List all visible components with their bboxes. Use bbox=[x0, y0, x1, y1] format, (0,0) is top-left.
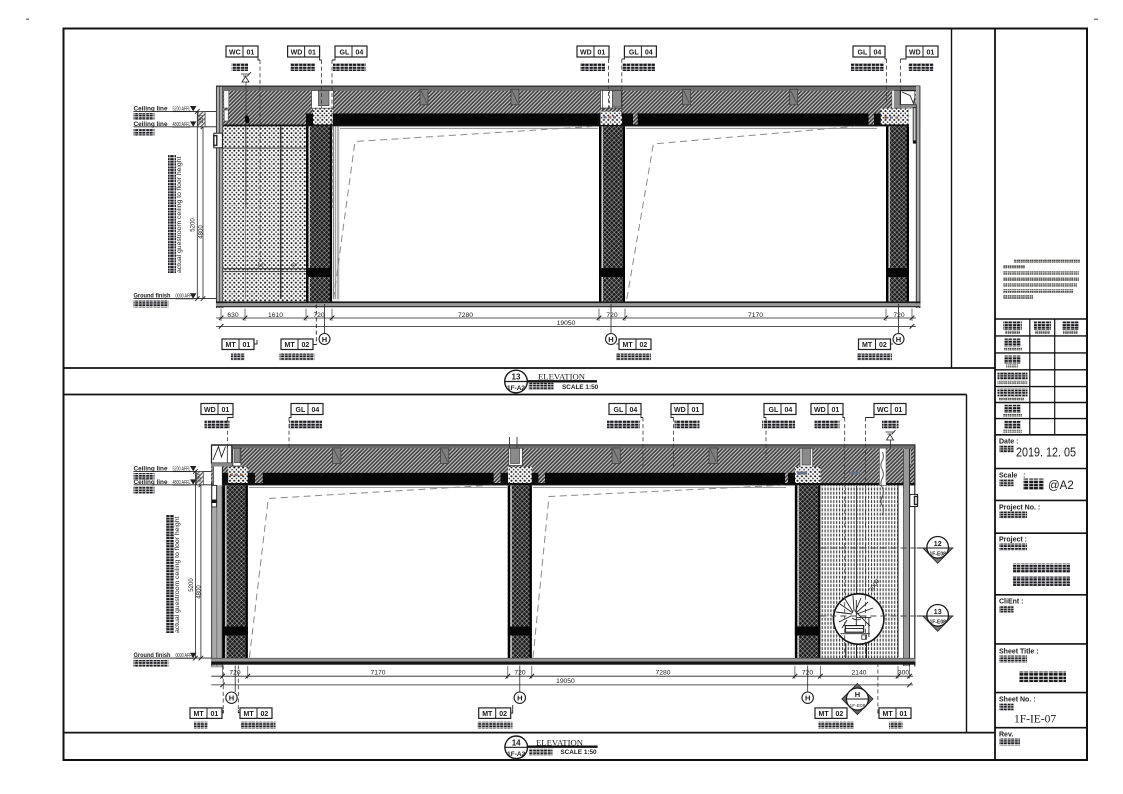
svg-text:02: 02 bbox=[836, 711, 844, 718]
svg-text:5200: 5200 bbox=[189, 578, 195, 592]
svg-text:720: 720 bbox=[893, 312, 904, 319]
svg-text:7280: 7280 bbox=[656, 670, 671, 677]
svg-text:Scale :: Scale : bbox=[999, 473, 1025, 480]
svg-text:H: H bbox=[855, 690, 860, 699]
svg-text:H: H bbox=[229, 694, 234, 703]
svg-text:04: 04 bbox=[645, 50, 653, 57]
svg-text:01: 01 bbox=[222, 407, 230, 414]
svg-text:WD: WD bbox=[909, 50, 921, 57]
svg-text:Sheet Title :: Sheet Title : bbox=[999, 649, 1039, 656]
svg-text:WD: WD bbox=[580, 50, 592, 57]
svg-text:Project No. :: Project No. : bbox=[999, 505, 1040, 512]
svg-text:630: 630 bbox=[227, 312, 238, 319]
svg-text:04: 04 bbox=[874, 50, 882, 57]
svg-text:MT: MT bbox=[285, 342, 296, 349]
svg-text:MT: MT bbox=[862, 342, 873, 349]
svg-text:60°: 60° bbox=[258, 263, 265, 268]
svg-text:2140: 2140 bbox=[852, 670, 867, 677]
svg-text:13: 13 bbox=[512, 373, 521, 382]
svg-text:300: 300 bbox=[898, 670, 909, 677]
svg-text:720: 720 bbox=[606, 312, 617, 319]
svg-text:01: 01 bbox=[598, 50, 606, 57]
svg-text:1F-IE-07: 1F-IE-07 bbox=[1014, 714, 1056, 726]
svg-text:19050: 19050 bbox=[556, 678, 575, 685]
svg-text:02: 02 bbox=[879, 342, 887, 349]
svg-text:60°: 60° bbox=[291, 263, 298, 268]
svg-text:SCALE 1:50: SCALE 1:50 bbox=[560, 749, 597, 756]
svg-text:12: 12 bbox=[934, 541, 942, 548]
svg-text:7280: 7280 bbox=[458, 312, 473, 319]
svg-text:1F-E08: 1F-E08 bbox=[929, 552, 946, 558]
svg-text:MT: MT bbox=[194, 711, 205, 718]
svg-text:WD: WD bbox=[204, 407, 216, 414]
svg-text:GL: GL bbox=[340, 50, 350, 57]
svg-text:01: 01 bbox=[832, 407, 840, 414]
svg-text:4800: 4800 bbox=[197, 585, 203, 599]
svg-text:MT: MT bbox=[244, 711, 255, 718]
svg-text:1F-E08: 1F-E08 bbox=[929, 620, 946, 626]
svg-text:Project :: Project : bbox=[999, 537, 1027, 544]
svg-text:01: 01 bbox=[243, 342, 251, 349]
svg-text:GL: GL bbox=[629, 50, 639, 57]
svg-text:GL: GL bbox=[614, 407, 624, 414]
svg-text:01: 01 bbox=[900, 711, 908, 718]
svg-text:Sheet No. :: Sheet No. : bbox=[999, 697, 1036, 704]
svg-text:H: H bbox=[608, 335, 613, 344]
svg-text:1F-E08: 1F-E08 bbox=[850, 703, 866, 709]
svg-text:SCALE 1:50: SCALE 1:50 bbox=[562, 384, 599, 391]
svg-text:WC: WC bbox=[877, 407, 889, 414]
svg-text:7170: 7170 bbox=[371, 670, 386, 677]
svg-text:1610: 1610 bbox=[268, 312, 283, 319]
svg-text:actual guestroom ceiling to fl: actual guestroom ceiling to floor height bbox=[176, 157, 183, 273]
svg-text:02: 02 bbox=[640, 342, 648, 349]
svg-text:4800: 4800 bbox=[199, 225, 205, 239]
svg-text:WC: WC bbox=[229, 50, 241, 57]
svg-text:Rev.: Rev. bbox=[999, 732, 1013, 739]
svg-text:WD: WD bbox=[814, 407, 826, 414]
svg-text:@A2: @A2 bbox=[1048, 480, 1074, 492]
svg-text:ELEVATION: ELEVATION bbox=[538, 372, 586, 382]
svg-text:01: 01 bbox=[895, 407, 903, 414]
svg-text:01: 01 bbox=[692, 407, 700, 414]
svg-text:CliEnt :: CliEnt : bbox=[999, 599, 1024, 606]
svg-text:01: 01 bbox=[211, 711, 219, 718]
svg-text:actual guestroom ceiling to fl: actual guestroom ceiling to floor height bbox=[174, 517, 181, 633]
svg-text:MT: MT bbox=[226, 342, 237, 349]
svg-text:720: 720 bbox=[313, 312, 324, 319]
svg-text:MT: MT bbox=[883, 711, 894, 718]
svg-text:H: H bbox=[896, 335, 901, 344]
svg-text:04: 04 bbox=[356, 50, 364, 57]
svg-text:H: H bbox=[805, 694, 810, 703]
svg-text:5200: 5200 bbox=[191, 218, 197, 232]
svg-text:01: 01 bbox=[927, 50, 935, 57]
svg-text:GL: GL bbox=[769, 407, 779, 414]
svg-text:2019. 12. 05: 2019. 12. 05 bbox=[1016, 445, 1076, 460]
svg-text:7170: 7170 bbox=[748, 312, 763, 319]
svg-text:04: 04 bbox=[630, 407, 638, 414]
svg-text:19050: 19050 bbox=[557, 320, 576, 327]
svg-text:GL: GL bbox=[858, 50, 868, 57]
svg-text:MT: MT bbox=[819, 711, 830, 718]
svg-text:02: 02 bbox=[302, 342, 310, 349]
svg-text:01: 01 bbox=[247, 50, 255, 57]
svg-text:WD: WD bbox=[674, 407, 686, 414]
svg-text:H: H bbox=[322, 335, 327, 344]
svg-text:WD: WD bbox=[291, 50, 303, 57]
svg-text:350: 350 bbox=[197, 474, 203, 483]
svg-text:350: 350 bbox=[199, 115, 205, 124]
svg-text:H: H bbox=[517, 694, 522, 703]
svg-text:13: 13 bbox=[934, 609, 942, 616]
svg-text:02: 02 bbox=[261, 711, 269, 718]
svg-text:04: 04 bbox=[312, 407, 320, 414]
svg-text:01: 01 bbox=[308, 50, 316, 57]
svg-text:GL: GL bbox=[296, 407, 306, 414]
svg-text:04: 04 bbox=[785, 407, 793, 414]
svg-text:02: 02 bbox=[499, 711, 507, 718]
svg-text:MT: MT bbox=[482, 711, 493, 718]
svg-text:1F-A2: 1F-A2 bbox=[507, 385, 525, 392]
svg-text:1F-A2: 1F-A2 bbox=[507, 751, 525, 758]
svg-text:MT: MT bbox=[623, 342, 634, 349]
svg-text:14: 14 bbox=[512, 738, 521, 747]
